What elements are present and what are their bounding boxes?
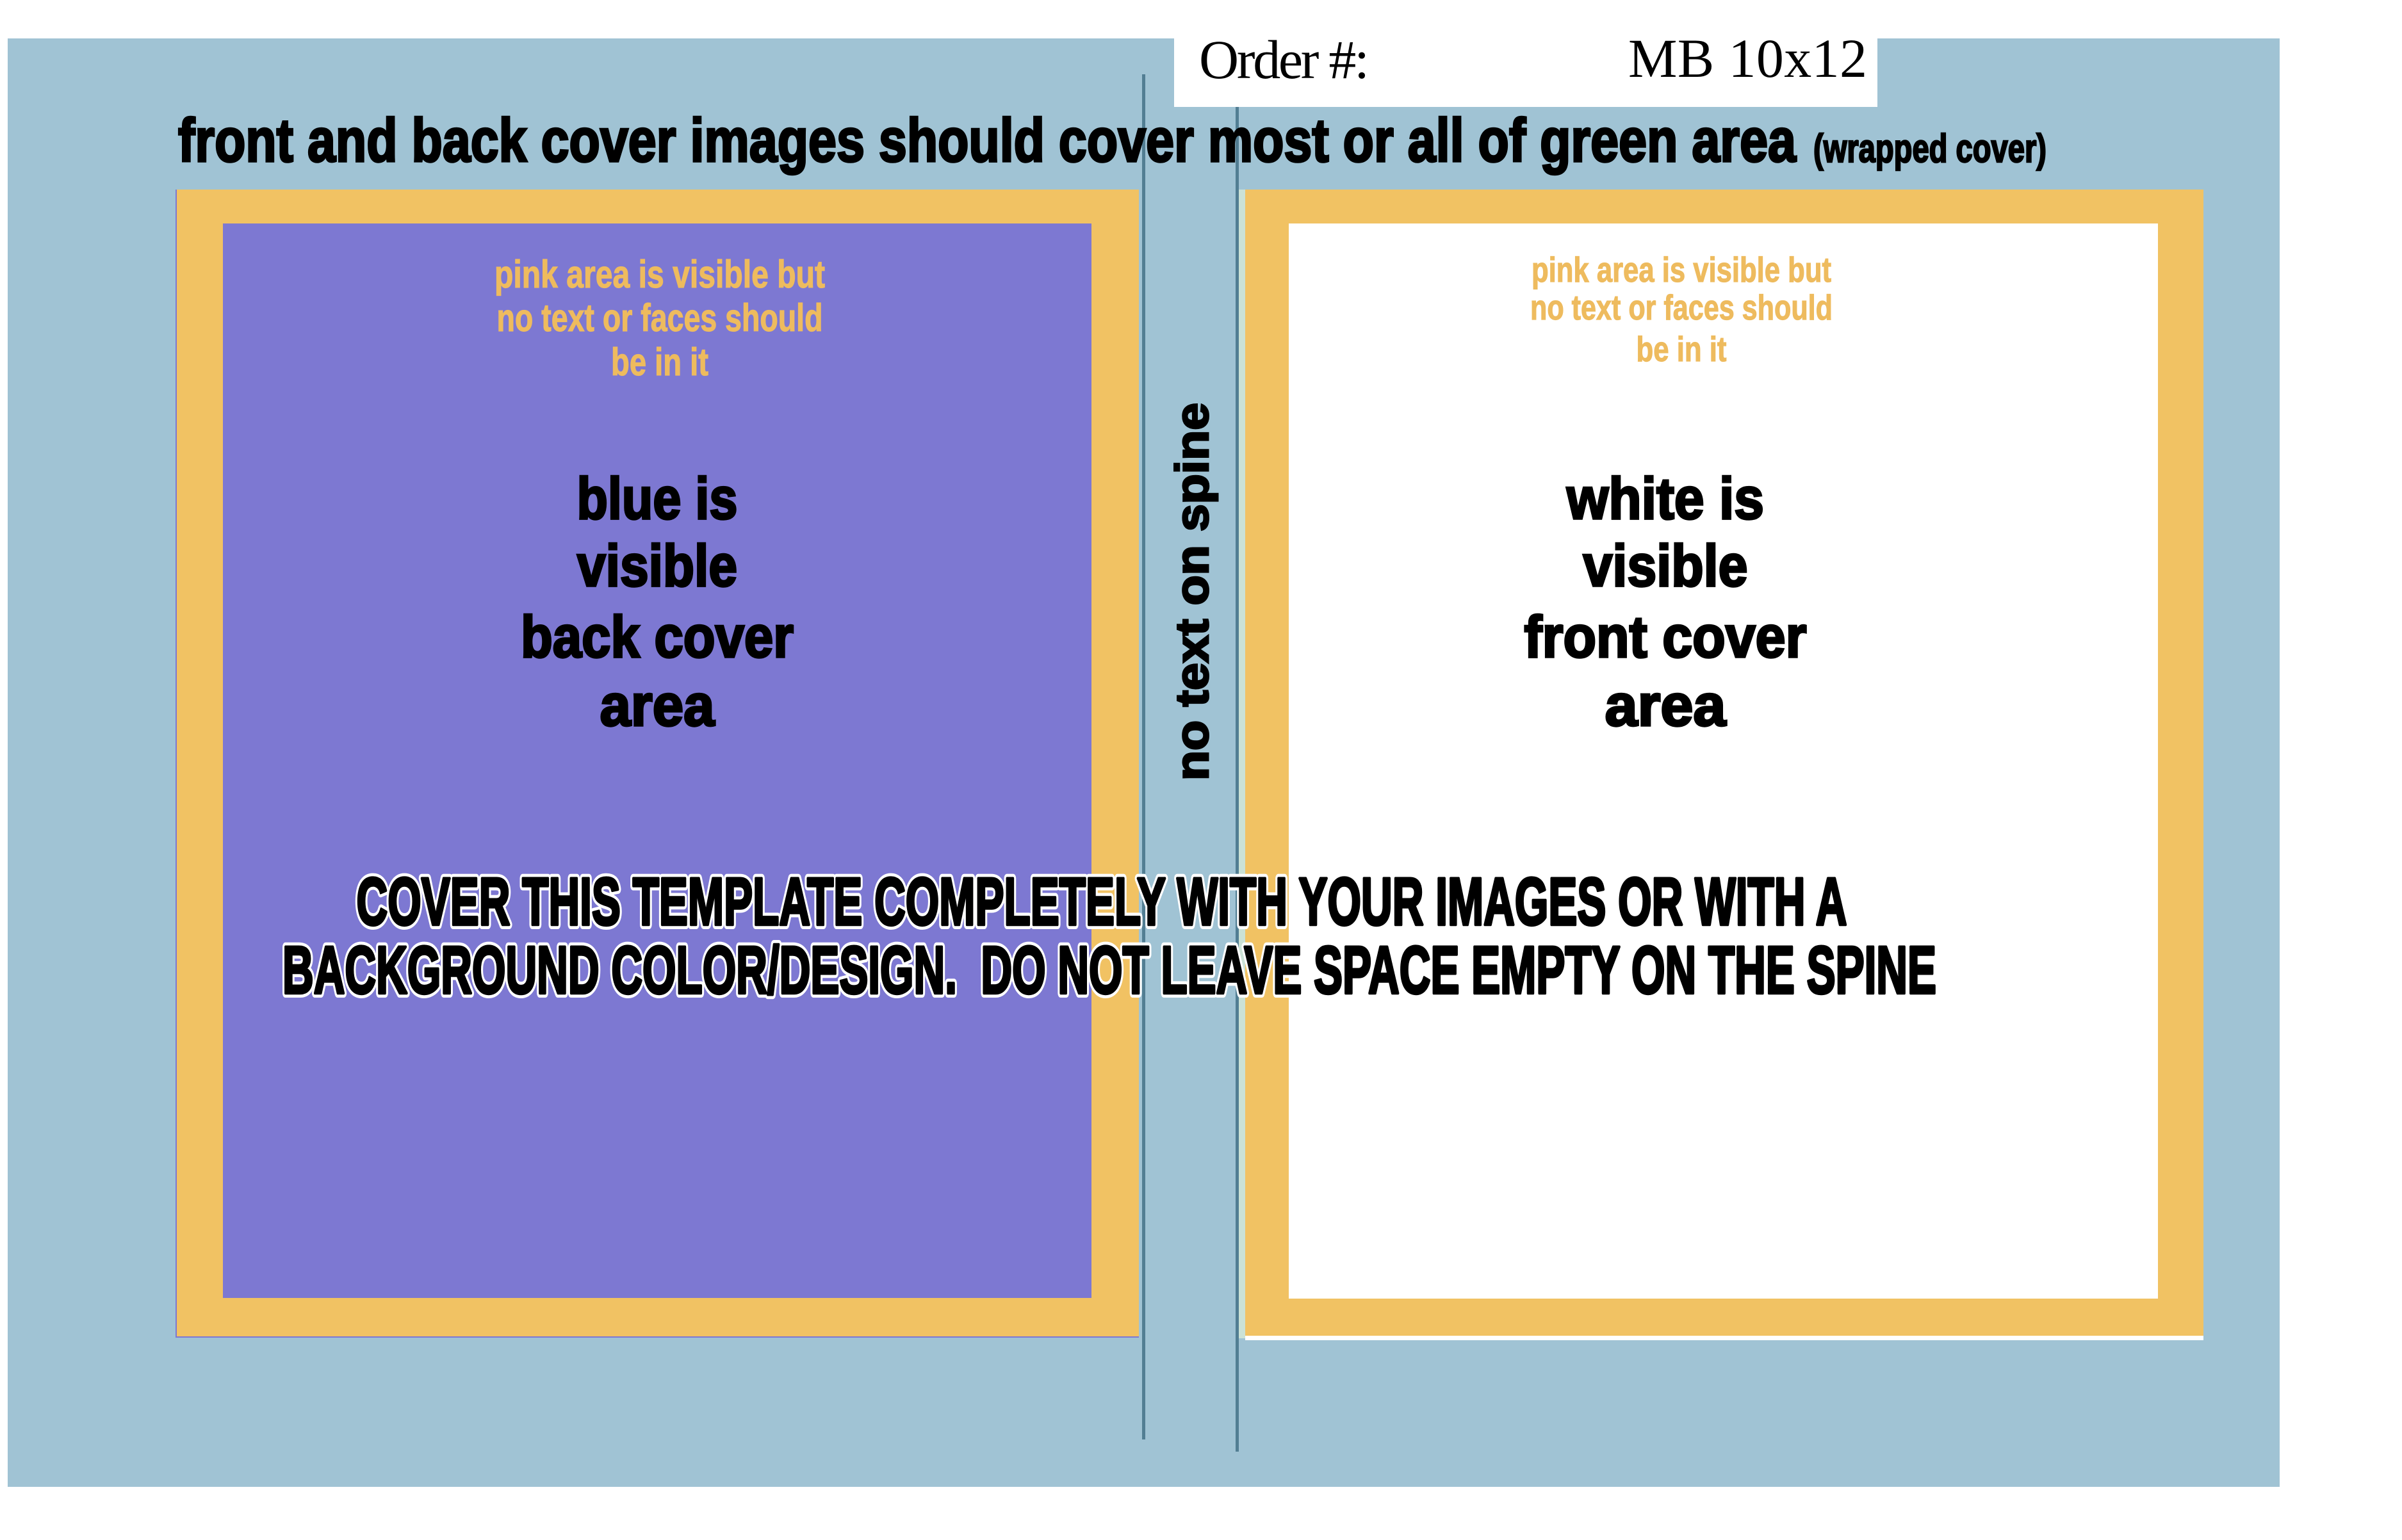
svg-text:COVER THIS TEMPLATE COMPLETELY: COVER THIS TEMPLATE COMPLETELY WITH YOUR…: [357, 864, 1847, 939]
svg-text:be in it: be in it: [1637, 329, 1727, 369]
svg-text:Order #:: Order #:: [1199, 29, 1369, 90]
svg-text:visible: visible: [1583, 533, 1748, 599]
svg-text:blue is: blue is: [577, 466, 738, 531]
svg-text:be in it: be in it: [611, 341, 708, 384]
svg-text:(wrapped cover): (wrapped cover): [1813, 127, 2047, 171]
svg-text:no text on spine: no text on spine: [1167, 403, 1218, 781]
svg-text:front and back cover images sh: front and back cover images should cover…: [178, 106, 1797, 175]
svg-text:area: area: [1605, 673, 1727, 738]
svg-text:BACKGROUND COLOR/DESIGN. DO N: BACKGROUND COLOR/DESIGN. DO NOT LEAVE SP…: [282, 933, 1936, 1008]
svg-text:white is: white is: [1566, 466, 1764, 531]
svg-text:front cover: front cover: [1524, 604, 1807, 670]
svg-text:pink area is visible but: pink area is visible but: [494, 253, 825, 296]
svg-text:no text or faces should: no text or faces should: [1530, 288, 1833, 327]
svg-text:visible: visible: [577, 533, 737, 599]
svg-text:pink area is visible but: pink area is visible but: [1532, 250, 1831, 289]
svg-text:back cover: back cover: [521, 604, 794, 670]
svg-text:area: area: [600, 673, 715, 738]
svg-text:no text or faces should: no text or faces should: [497, 296, 823, 339]
svg-text:MB 10x12: MB 10x12: [1628, 28, 1867, 89]
